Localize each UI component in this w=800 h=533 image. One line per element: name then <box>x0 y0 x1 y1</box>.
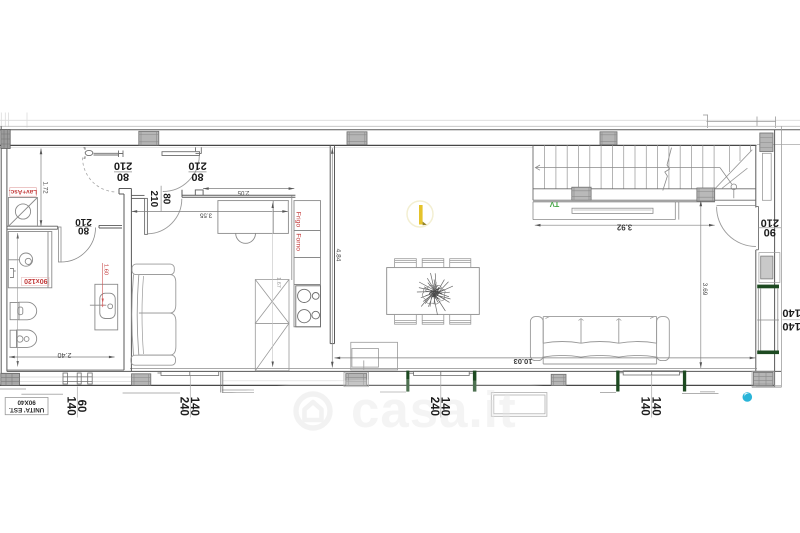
svg-text:240: 240 <box>177 397 189 416</box>
svg-text:2.40: 2.40 <box>58 351 72 360</box>
svg-text:10.03: 10.03 <box>513 357 532 366</box>
svg-text:210: 210 <box>761 217 779 229</box>
svg-text:3.55: 3.55 <box>199 211 212 218</box>
svg-text:1.67: 1.67 <box>275 277 281 288</box>
svg-text:Lav+Asc.: Lav+Asc. <box>9 188 37 195</box>
svg-text:140: 140 <box>782 306 800 318</box>
svg-text:140: 140 <box>782 320 800 332</box>
svg-text:1.72: 1.72 <box>42 181 49 194</box>
svg-text:210: 210 <box>75 216 92 227</box>
svg-text:2.05: 2.05 <box>237 189 249 195</box>
svg-text:4.84: 4.84 <box>334 249 341 262</box>
svg-text:TV: TV <box>550 200 560 209</box>
svg-text:210: 210 <box>148 190 159 207</box>
svg-text:1.60: 1.60 <box>102 264 108 275</box>
svg-text:Forno: Forno <box>294 233 301 251</box>
svg-text:80: 80 <box>161 193 172 205</box>
svg-text:140: 140 <box>639 397 651 416</box>
svg-text:Frigo: Frigo <box>294 212 301 228</box>
svg-text:3.92: 3.92 <box>616 223 632 232</box>
svg-text:140: 140 <box>64 396 76 415</box>
svg-text:90x120: 90x120 <box>24 277 47 284</box>
svg-text:240: 240 <box>428 397 440 416</box>
svg-text:3.69: 3.69 <box>701 283 708 296</box>
svg-text:210: 210 <box>188 160 206 172</box>
svg-text:UNITA' EST.: UNITA' EST. <box>9 406 45 413</box>
svg-text:210: 210 <box>114 160 132 172</box>
svg-text:90X40: 90X40 <box>17 399 36 406</box>
